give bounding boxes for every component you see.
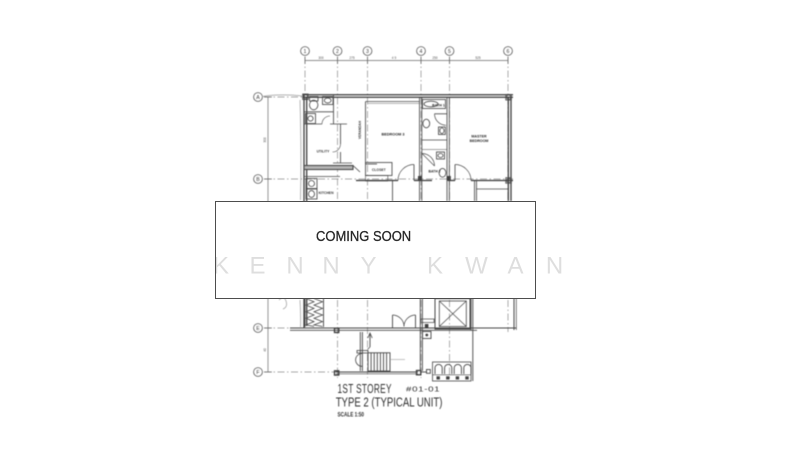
svg-text:F: F [256, 370, 259, 376]
svg-text:#01-01: #01-01 [406, 385, 440, 394]
svg-text:4 9: 4 9 [392, 56, 397, 60]
svg-text:KITCHEN: KITCHEN [318, 191, 334, 195]
svg-text:300: 300 [318, 56, 324, 60]
svg-text:VERANDAH: VERANDAH [358, 120, 362, 139]
svg-text:1ST STOREY: 1ST STOREY [338, 382, 392, 396]
svg-text:BEDROOM: BEDROOM [470, 139, 489, 143]
svg-text:TYPE 2 (TYPICAL UNIT): TYPE 2 (TYPICAL UNIT) [336, 396, 443, 410]
svg-text:525: 525 [475, 56, 481, 60]
svg-text:BEDROOM 3: BEDROOM 3 [382, 133, 405, 137]
svg-text:CLOSET: CLOSET [372, 168, 387, 172]
svg-text:300: 300 [263, 137, 267, 143]
svg-text:UTILITY: UTILITY [317, 150, 331, 154]
svg-text:2: 2 [336, 49, 339, 55]
svg-text:E: E [256, 326, 260, 332]
svg-text:6: 6 [507, 49, 510, 55]
svg-text:BATH 1: BATH 1 [432, 104, 445, 108]
svg-text:A: A [256, 95, 260, 101]
svg-text:40: 40 [263, 348, 267, 352]
svg-text:3: 3 [366, 49, 369, 55]
svg-text:BATH 2: BATH 2 [429, 169, 441, 173]
svg-text:1: 1 [304, 49, 307, 55]
svg-text:275: 275 [349, 56, 355, 60]
svg-text:4: 4 [420, 49, 423, 55]
svg-text:SCALE 1:50: SCALE 1:50 [338, 412, 365, 419]
svg-text:250: 250 [432, 56, 438, 60]
svg-text:B: B [256, 177, 260, 183]
svg-text:5: 5 [448, 49, 451, 55]
